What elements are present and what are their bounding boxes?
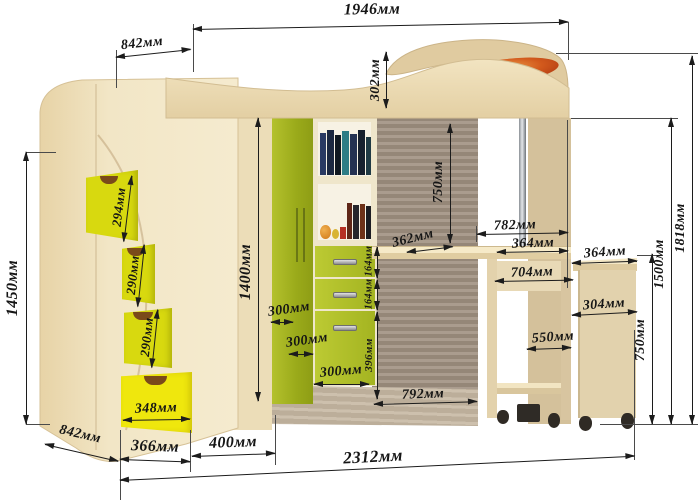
dim-label-348: 348мм: [135, 400, 178, 417]
dim-label-550: 550мм: [531, 329, 574, 348]
dim-line-164a: [377, 247, 378, 278]
extension-line: [275, 415, 276, 465]
dim-label-2312: 2312мм: [343, 445, 404, 468]
extension-line: [26, 152, 56, 153]
dim-label-792: 792мм: [402, 386, 445, 403]
dim-line-300c: [314, 384, 369, 385]
dim-label-304: 304мм: [582, 296, 625, 315]
dim-line-1818: [692, 56, 693, 424]
dim-label-1946: 1946мм: [344, 1, 401, 20]
dim-label-750-right: 750мм: [633, 319, 649, 361]
extension-line: [568, 22, 569, 60]
dim-label-302: 302мм: [368, 59, 384, 101]
dim-line-1450: [26, 152, 27, 424]
dim-line-1400: [258, 118, 259, 401]
dim-line-396: [377, 312, 378, 399]
dim-label-164b: 164мм: [364, 279, 375, 310]
dim-label-1400: 1400мм: [237, 244, 255, 300]
dim-label-164a: 164мм: [364, 246, 375, 277]
dim-label-364b: 364мм: [583, 244, 626, 263]
dim-line-300b: [289, 354, 313, 355]
dim-line-1500: [671, 118, 672, 424]
dim-label-704: 704мм: [511, 264, 554, 281]
extension-line: [26, 424, 50, 425]
dim-line-302: [386, 52, 387, 108]
dim-line-164b: [377, 280, 378, 310]
dim-label-1500: 1500мм: [652, 239, 668, 289]
dim-label-364a: 364мм: [512, 235, 555, 252]
dim-line-300a: [271, 322, 293, 323]
dim-label-1450: 1450мм: [4, 260, 22, 316]
extension-line: [567, 120, 568, 288]
dim-label-366: 366мм: [131, 437, 180, 457]
extension-line: [556, 53, 698, 54]
dim-line-750-underbed: [450, 124, 451, 243]
furniture-dimension-diagram: 1946мм 842мм 302мм 1450мм 294мм 290мм 29…: [0, 0, 700, 502]
dim-label-1818: 1818мм: [673, 203, 689, 253]
extension-line: [120, 430, 121, 500]
dim-label-396: 396мм: [363, 338, 375, 372]
extension-line: [571, 118, 678, 119]
dim-label-750-underbed: 750мм: [431, 161, 447, 203]
dim-label-782: 782мм: [494, 217, 537, 234]
dim-label-400: 400мм: [209, 433, 258, 453]
extension-line: [190, 430, 191, 472]
